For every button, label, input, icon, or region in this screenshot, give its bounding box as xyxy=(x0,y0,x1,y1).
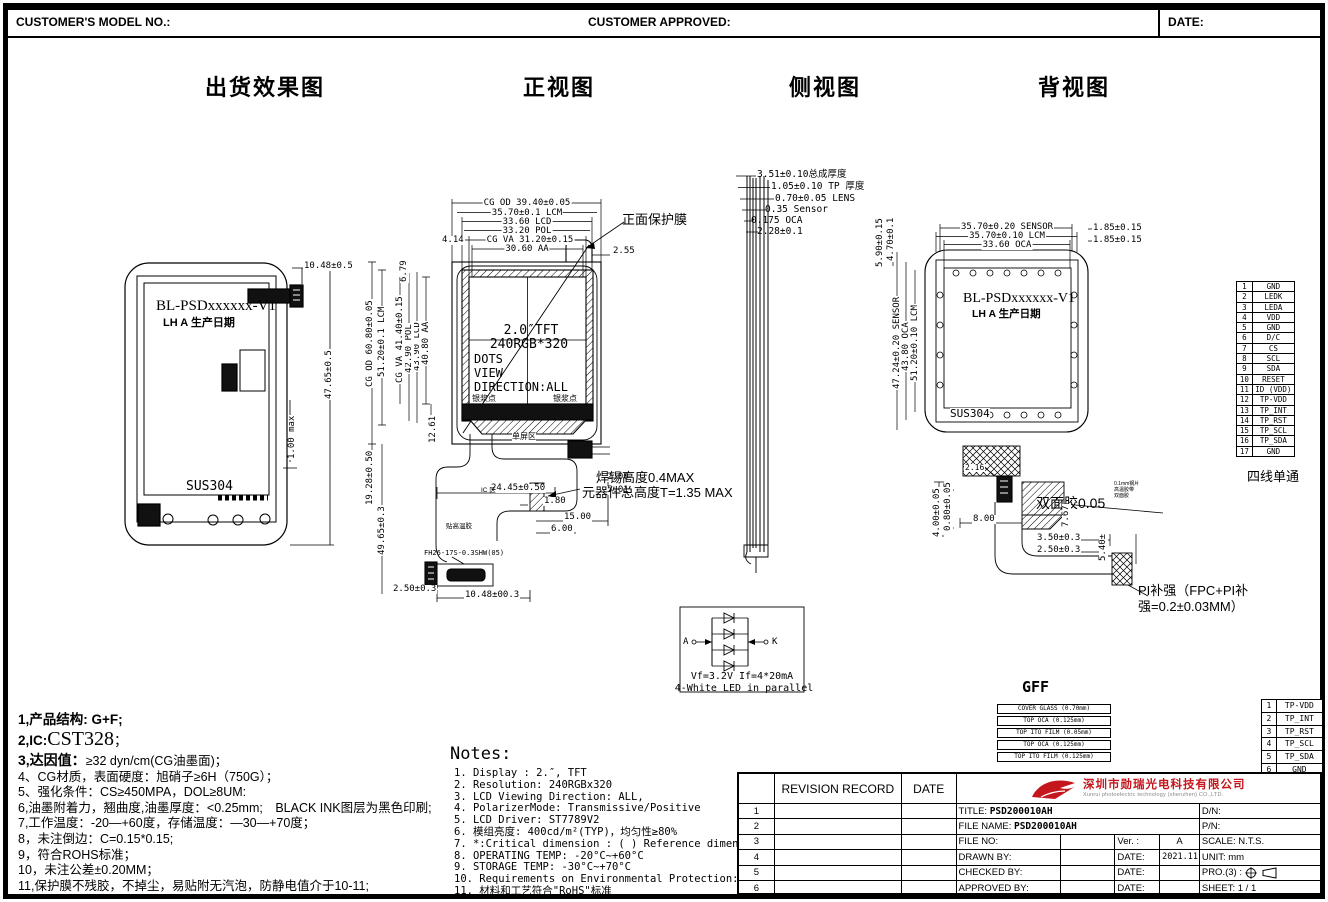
led-spec-text: Vf=3.2V If=4*20mA xyxy=(691,672,793,682)
title-side-view: 侧视图 xyxy=(789,70,861,102)
drawn-by-value-cell xyxy=(1060,850,1115,864)
pin-row: 3LEDA xyxy=(1236,302,1295,313)
projection-symbol-icon xyxy=(1245,867,1279,879)
dim-sensor-thickness: 0.35 Sensor xyxy=(765,205,828,215)
pin-num: 3 xyxy=(1237,303,1253,312)
revision-row-desc xyxy=(774,850,901,864)
cn-note-3: 3,达因值：≥32 dyn/cm(CG油墨面)； xyxy=(18,752,432,770)
customer-approved-label: CUSTOMER APPROVED: xyxy=(588,16,731,28)
dim-0-80: 0.80±0.05 xyxy=(944,481,953,532)
dim-shipping-height: 47.65±0.5 xyxy=(325,349,334,400)
pin-num: 1 xyxy=(1237,282,1253,291)
dim-shipping-top: 10.48±0.5 xyxy=(303,262,354,271)
gff-layer: TOP OCA (0.125mm) xyxy=(997,716,1111,726)
gff-layer: TOP OCA (0.125mm) xyxy=(997,740,1111,750)
pin-row: 10RESET xyxy=(1236,374,1295,385)
revision-row-num: 2 xyxy=(739,819,774,833)
screen-resolution-text: 240RGB*320 xyxy=(490,338,568,351)
pin-row: 7CS xyxy=(1236,343,1295,354)
file-name-label: FILE NAME: xyxy=(959,821,1012,832)
pin-table: 1GND 2LEDK 3LEDA 4VDD 5GND 6D/C 7CS 8SCL… xyxy=(1236,282,1295,457)
fpc-connector-label: FH26-17S-0.3SHW(05) xyxy=(424,550,504,557)
unit-cell: UNIT: mm xyxy=(1199,850,1320,864)
revision-row-desc xyxy=(774,804,901,818)
cn-note-11: 11,保护膜不残胶，不掉尘，易贴附无汽泡，防静电值介于10-11; xyxy=(18,879,432,895)
ver-value-cell: A xyxy=(1159,835,1199,849)
pin-row: 5GND xyxy=(1236,322,1295,333)
pin-num: 7 xyxy=(1237,344,1253,353)
dim-2-55: 2.55 xyxy=(612,247,636,256)
pin-signal: TP_RST xyxy=(1253,416,1294,425)
pin-row: 2LEDK xyxy=(1236,291,1295,302)
dim-1-85-a: 1.85±0.15 xyxy=(1092,224,1143,233)
dim-6-79: 6.79 xyxy=(400,259,409,283)
dim-aa-height: 40.80 AA xyxy=(422,321,431,366)
cn-note-5: 5、强化条件：CS≥450MPA，DOL≥8UM: xyxy=(18,785,432,801)
gff-title: GFF xyxy=(1022,680,1049,695)
pin-signal: TP_INT xyxy=(1277,713,1322,725)
checked-by-value-cell xyxy=(1060,866,1115,880)
checked-by-cell: CHECKED BY: xyxy=(956,866,1060,880)
pin-row: 14TP_RST xyxy=(1236,415,1295,426)
title-label: TITLE: xyxy=(959,806,988,817)
led-cathode-label: K xyxy=(772,638,777,647)
pin-row: 11ID (VDD) xyxy=(1236,384,1295,395)
dim-1-80: 1.80 xyxy=(543,497,567,506)
pin-num: 9 xyxy=(1237,364,1253,373)
shipping-model-text: BL-PSDxxxxxx-V1 xyxy=(156,299,276,314)
company-logo-icon xyxy=(1031,777,1077,801)
dim-10-48-bottom: 10.48±00.3 xyxy=(464,591,520,600)
pin-signal: TP_SDA xyxy=(1253,436,1294,445)
tp-pin-table: 1TP-VDD 2TP_INT 3TP_RST 4TP_SCL 5TP_SDA … xyxy=(1261,700,1323,777)
cn-note-4: 4、CG材质，表面硬度：旭硝子≥6H（750G）； xyxy=(18,770,432,786)
scale-cell: SCALE: N.T.S. xyxy=(1199,835,1320,849)
revision-row-num: 4 xyxy=(739,850,774,864)
led-parallel-text: 4-White LED in parallel xyxy=(675,684,813,694)
approved-by-value-cell xyxy=(1060,881,1115,895)
pin-signal: D/C xyxy=(1253,333,1294,342)
pin-num: 17 xyxy=(1237,447,1253,456)
cn-note-3-prefix: 3,达因值： xyxy=(18,752,86,768)
stack-note-adhesive: 双面胶 xyxy=(1114,494,1129,499)
pin-signal: LEDA xyxy=(1253,303,1294,312)
pin-num: 12 xyxy=(1237,395,1253,404)
pin-signal: VDD xyxy=(1253,313,1294,322)
silver-paste-right-label: 银浆点 xyxy=(553,395,577,403)
chinese-notes: 1,产品结构: G+F; 2,IC:CST328； 3,达因值：≥32 dyn/… xyxy=(18,712,432,894)
pin-num: 6 xyxy=(1237,333,1253,342)
dim-6-00: 6.00 xyxy=(550,525,574,534)
ver-label-cell: Ver. : xyxy=(1114,835,1159,849)
cn-note-2: 2,IC:CST328； xyxy=(18,728,432,752)
dim-aa-width: 30.60 AA xyxy=(504,245,549,254)
shipping-date-code: LH A 生产日期 xyxy=(163,318,235,329)
revision-row-desc xyxy=(774,881,901,895)
back-date-code: LH A 生产日期 xyxy=(972,309,1041,320)
back-model-text: BL-PSDxxxxxx-V1 xyxy=(963,292,1075,306)
dim-2-16: 2.16 xyxy=(964,464,985,472)
revision-row-num: 6 xyxy=(739,881,774,895)
dim-lcm-height: 51.20±0.1 LCM xyxy=(378,306,387,378)
pin-num: 4 xyxy=(1237,313,1253,322)
dim-15-00: 15.00 xyxy=(563,513,592,522)
file-no-value-cell xyxy=(1060,835,1115,849)
company-logo-cell: 深圳市勋瑞光电科技有限公司 Xunrui photoelectric techn… xyxy=(956,774,1320,803)
title-block: REVISION RECORD DATE 深圳市勋瑞光电科技有限公司 Xunru… xyxy=(737,772,1322,895)
pin-signal: SDA xyxy=(1253,364,1294,373)
dim-2-50-back: 2.50±0.3 xyxy=(1036,546,1081,555)
drawn-date-value-cell: 2021.11.24 xyxy=(1159,850,1199,864)
tp-pin-row: 1TP-VDD xyxy=(1261,699,1323,713)
cn-note-6: 6,油墨附着力，翘曲度,油墨厚度：<0.25mm; BLACK INK图层为黑色… xyxy=(18,801,432,817)
pin-signal: TP-VDD xyxy=(1253,395,1294,404)
dim-24-45: 24.45±0.50 xyxy=(490,484,546,493)
screen-dots-text: DOTS xyxy=(474,353,503,365)
bottom-zone-label: 单屏区 xyxy=(512,433,536,441)
cn-note-2-suffix: ； xyxy=(114,733,128,748)
company-name-cn: 深圳市勋瑞光电科技有限公司 xyxy=(1083,779,1246,792)
dim-lcm-height-back: 51.20±0.10 LCM xyxy=(911,304,920,382)
cn-note-2-prefix: 2,IC: xyxy=(18,733,47,748)
pin-num: 15 xyxy=(1237,426,1253,435)
dim-49-65: 49.65±0.3 xyxy=(378,505,387,556)
revision-row-num: 5 xyxy=(739,866,774,880)
high-temp-tape-label: 贴高温胶 xyxy=(446,524,472,531)
approved-date-value-cell xyxy=(1159,881,1199,895)
dim-5-90: 5.90±0.15 xyxy=(876,217,885,268)
pin-signal: TP_SCL xyxy=(1277,738,1322,750)
pin-num: 1 xyxy=(1262,700,1277,712)
checked-date-label-cell: DATE: xyxy=(1114,866,1159,880)
approved-date-label-cell: DATE: xyxy=(1114,881,1159,895)
dim-4-00: 4.00±0.05 xyxy=(933,487,942,538)
cn-note-9: 9，符合ROHS标准； xyxy=(18,848,432,864)
file-no-cell: FILE NO: xyxy=(956,835,1060,849)
title-value: PSD200010AH xyxy=(990,806,1053,817)
pin-num: 2 xyxy=(1262,713,1277,725)
file-name-cell: FILE NAME: PSD200010AH xyxy=(956,819,1199,833)
pin-signal: GND xyxy=(1253,282,1294,291)
pin-signal: RESET xyxy=(1253,375,1294,384)
cn-note-1: 1,产品结构: G+F; xyxy=(18,712,432,728)
sheet-cell: SHEET: 1 / 1 xyxy=(1199,881,1320,895)
cn-note-10: 10，未注公差±0.20MM； xyxy=(18,863,432,879)
revision-row-desc xyxy=(774,835,901,849)
tp-pin-row: 3TP_RST xyxy=(1261,725,1323,739)
pi-stiffener-note-line1: PI补强（FPC+PI补 xyxy=(1138,584,1248,597)
pin-num: 13 xyxy=(1237,406,1253,415)
pin-row: 15TP_SCL xyxy=(1236,425,1295,436)
pin-num: 14 xyxy=(1237,416,1253,425)
pin-num: 4 xyxy=(1262,738,1277,750)
revision-row-desc xyxy=(774,866,901,880)
gff-layer: TOP ITO FILM (0.05mm) xyxy=(997,728,1111,738)
revision-row-date xyxy=(901,866,956,880)
engineering-drawing-sheet: CUSTOMER'S MODEL NO.: CUSTOMER APPROVED:… xyxy=(0,0,1328,902)
title-shipping-view: 出货效果图 xyxy=(205,70,325,102)
dn-cell: D/N: xyxy=(1199,804,1320,818)
customer-model-no-label: CUSTOMER'S MODEL NO.: xyxy=(16,16,170,28)
revision-date-header: DATE xyxy=(901,774,956,803)
dim-3-50: 3.50±0.3 xyxy=(1036,534,1081,543)
projection-cell: PRO.(3) : xyxy=(1199,866,1320,880)
dim-1-85-b: 1.85±0.15 xyxy=(1092,236,1143,245)
pin-signal: TP_SCL xyxy=(1253,426,1294,435)
pin-num: 11 xyxy=(1237,385,1253,394)
pin-signal: SCL xyxy=(1253,354,1294,363)
dim-5-40: 5.40± xyxy=(1099,533,1108,562)
pin-num: 3 xyxy=(1262,726,1277,738)
led-anode-label: A xyxy=(683,638,688,647)
protect-film-label: 正面保护膜 xyxy=(622,213,687,226)
cn-note-8: 8，未注倒边：C=0.15*0.15; xyxy=(18,832,432,848)
en-note-7: 7. *:Critical dimension : ( ) Reference … xyxy=(450,839,770,851)
cn-note-7: 7,工作温度：-20—+60度，存储温度：—30—+70度； xyxy=(18,816,432,832)
pin-row: 12TP-VDD xyxy=(1236,394,1295,405)
dim-cg-od-height: CG OD 60.80±0.05 xyxy=(366,299,375,388)
company-name-en: Xunrui photoelectric technology (shenzhe… xyxy=(1083,792,1246,798)
drawn-by-cell: DRAWN BY: xyxy=(956,850,1060,864)
dim-4-70: 4.70±0.1 xyxy=(887,217,896,262)
dim-oca-width-back: 33.60 OCA xyxy=(982,241,1033,250)
pin-signal: CS xyxy=(1253,344,1294,353)
pin-num: 16 xyxy=(1237,436,1253,445)
revision-row-date xyxy=(901,819,956,833)
dim-cg-va-height: CG VA 41.40±0.15 xyxy=(396,295,405,384)
drawn-date-label-cell: DATE: xyxy=(1114,850,1159,864)
revision-row-date xyxy=(901,881,956,895)
screen-view-text: VIEW xyxy=(474,367,503,379)
dim-lens-thickness: 0.70±0.05 LENS xyxy=(775,194,855,204)
en-note-2: 2. Resolution: 240RGBx320 xyxy=(450,780,770,792)
file-name-value: PSD200010AH xyxy=(1014,821,1077,832)
pin-signal: ID (VDD) xyxy=(1253,385,1294,394)
tp-pin-row: 4TP_SCL xyxy=(1261,737,1323,751)
revision-num-header xyxy=(739,774,774,803)
revision-row-date xyxy=(901,835,956,849)
pin-signal: GND xyxy=(1253,323,1294,332)
pi-stiffener-note-line2: 强=0.2±0.03MM） xyxy=(1138,600,1244,613)
dim-4-14: 4.14 xyxy=(441,236,465,245)
revision-record-header: REVISION RECORD xyxy=(774,774,901,803)
dim-tp-thickness: 1.05±0.10 TP 厚度 xyxy=(771,182,864,192)
dim-19-28: 19.28±0.50 xyxy=(366,450,375,506)
en-note-11: 11. 材料和工艺符合"RoHS"标准 xyxy=(450,886,770,898)
dim-8-00: 8.00 xyxy=(972,515,996,524)
pin-row: 17GND xyxy=(1236,446,1295,457)
pin-row: 16TP_SDA xyxy=(1236,435,1295,446)
dim-shipping-step: 1.00 max xyxy=(288,415,297,460)
screen-direction-text: DIRECTION:ALL xyxy=(474,381,568,393)
pin-signal: TP_RST xyxy=(1277,726,1322,738)
dim-12-61: 12.61 xyxy=(429,415,438,444)
pin-row: 9SDA xyxy=(1236,363,1295,374)
english-notes: Notes: 1. Display : 2.″, TFT 2. Resoluti… xyxy=(450,744,770,898)
approved-by-cell: APPROVED BY: xyxy=(956,881,1060,895)
pn-cell: P/N: xyxy=(1199,819,1320,833)
revision-row-desc xyxy=(774,819,901,833)
dim-oca-thickness: 0.175 OCA xyxy=(751,216,802,226)
pin-signal: LEDK xyxy=(1253,292,1294,301)
dim-lcm-thickness: 2.28±0.1 xyxy=(757,227,803,237)
checked-date-value-cell xyxy=(1159,866,1199,880)
pin-num: 8 xyxy=(1237,354,1253,363)
date-label: DATE: xyxy=(1168,16,1204,28)
pin-signal: TP_INT xyxy=(1253,406,1294,415)
pin-num: 2 xyxy=(1237,292,1253,301)
projection-label: PRO.(3) : xyxy=(1202,867,1242,878)
pin-num: 10 xyxy=(1237,375,1253,384)
ic-zone-label: IC 区 xyxy=(481,488,496,495)
pin-row: 8SCL xyxy=(1236,353,1295,364)
tp-pin-row: 5TP_SDA xyxy=(1261,750,1323,764)
notes-title: Notes: xyxy=(450,744,770,764)
pin-row: 6D/C xyxy=(1236,332,1295,343)
dim-2-50-front: 2.50±0.3 xyxy=(392,585,437,594)
gff-layer: COVER GLASS (0.70mm) xyxy=(997,704,1111,714)
revision-row-num: 1 xyxy=(739,804,774,818)
gff-stack-table: COVER GLASS (0.70mm) TOP OCA (0.125mm) T… xyxy=(997,704,1111,764)
pin-num: 5 xyxy=(1262,751,1277,763)
pin-row: 4VDD xyxy=(1236,312,1295,323)
pin-signal: TP_SDA xyxy=(1277,751,1322,763)
solder-height-note: 焊锡高度0.4MAX xyxy=(596,471,694,484)
pin-signal: TP-VDD xyxy=(1277,700,1322,712)
title-back-view: 背视图 xyxy=(1038,70,1110,102)
back-view-drawing xyxy=(883,224,1163,596)
tp-pin-row: 2TP_INT xyxy=(1261,712,1323,726)
back-steel-label: SUS304 xyxy=(950,408,990,419)
shipping-steel-label: SUS304 xyxy=(186,480,233,493)
pin-row: 1GND xyxy=(1236,281,1295,292)
revision-row-date xyxy=(901,850,956,864)
dim-7-67: 7.67 xyxy=(1062,504,1071,528)
pin-num: 5 xyxy=(1237,323,1253,332)
title-cell: TITLE: PSD200010AH xyxy=(956,804,1199,818)
ic-model-text: CST328 xyxy=(47,728,114,750)
revision-row-date xyxy=(901,804,956,818)
dim-total-thickness: 3.51±0.10总成厚度 xyxy=(757,170,846,180)
cn-note-3-rest: ≥32 dyn/cm(CG油墨面)； xyxy=(86,754,228,768)
en-note-6: 6. 模组亮度: 400cd/m²(TYP)，均匀性≥80% xyxy=(450,827,770,839)
title-front-view: 正视图 xyxy=(523,70,595,102)
component-height-note: 元器件总高度T=1.35 MAX xyxy=(582,486,733,499)
four-wire-caption: 四线单通 xyxy=(1247,470,1299,483)
dim-pol-height: 42.90 POL xyxy=(405,323,414,374)
revision-row-num: 3 xyxy=(739,835,774,849)
gff-layer: TOP ITO FILM (0.125mm) xyxy=(997,752,1111,762)
pin-signal: GND xyxy=(1253,447,1294,456)
silver-paste-left-label: 银浆点 xyxy=(472,395,496,403)
pin-row: 13TP_INT xyxy=(1236,405,1295,416)
screen-size-text: 2.0″TFT xyxy=(504,324,559,337)
